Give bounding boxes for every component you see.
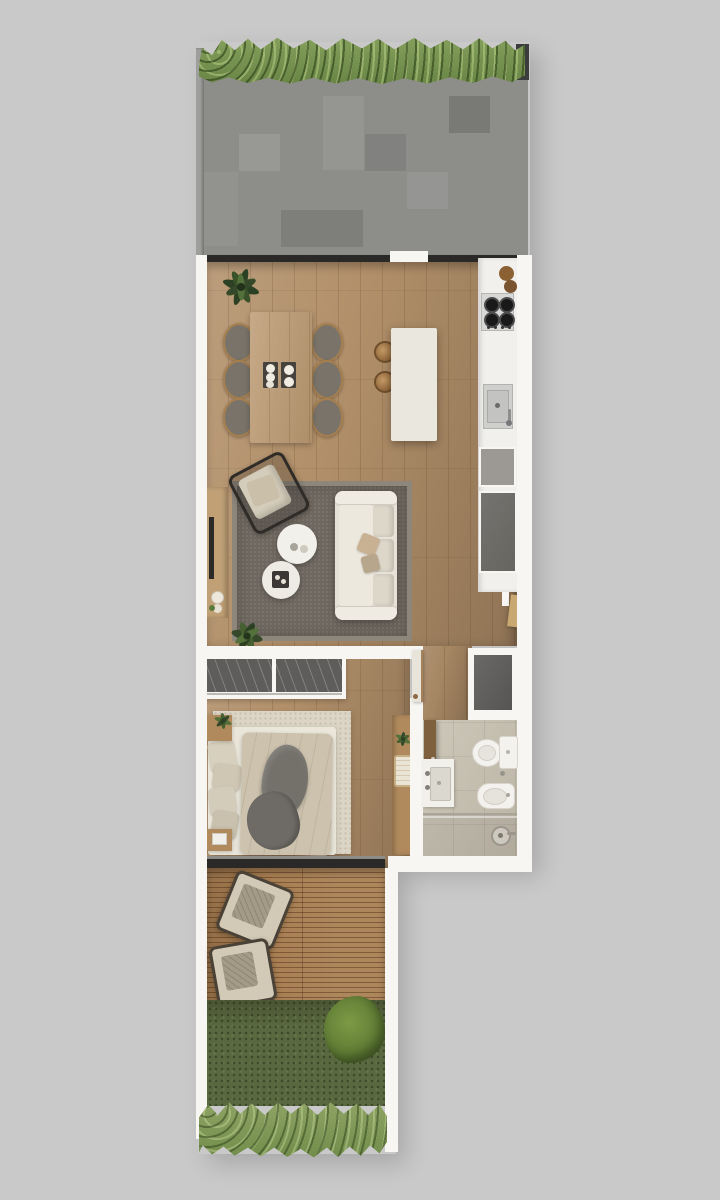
bedroom-bathroom-wall [410, 698, 423, 862]
dining-table [250, 312, 312, 443]
left-wall [196, 255, 207, 1139]
dining-chair [311, 360, 343, 399]
kitchen-island [391, 328, 437, 441]
cooktop [481, 293, 514, 331]
toilet-bowl-inner [478, 745, 496, 761]
cooktop-knob [494, 326, 497, 329]
dining-plant [214, 260, 268, 314]
bedroom-sliding-door [207, 859, 385, 868]
kitchen-cabinet-tall [479, 491, 517, 573]
plate [284, 365, 294, 375]
living-bedroom-wall [196, 646, 423, 659]
lounger-cushion [221, 951, 259, 991]
deck-seam [302, 868, 303, 1002]
shower-head-center [498, 833, 503, 838]
bidet-drain [506, 793, 510, 797]
burner [484, 297, 500, 313]
dining-chair [311, 398, 343, 437]
deck-lounger [208, 937, 278, 1009]
cooktop-knob [508, 326, 511, 329]
stone-tile [365, 134, 406, 171]
hall-closet-door [474, 655, 512, 710]
plate [266, 381, 274, 388]
placemat [263, 362, 278, 388]
basin-faucet [425, 771, 430, 776]
sofa-armrest [335, 607, 397, 620]
bedroom-door-leaf [412, 650, 423, 702]
floor-plan-canvas [0, 0, 720, 1200]
toilet-cistern [499, 736, 518, 769]
basin-faucet [425, 785, 430, 790]
cutting-board [504, 280, 517, 293]
toilet-flush-button [506, 750, 510, 754]
placemat [281, 362, 296, 388]
washbasin-vanity [423, 759, 454, 807]
entrance-door-jamb [502, 592, 509, 606]
wardrobe-rail [206, 693, 342, 695]
bidet-faucet [500, 771, 505, 776]
cutting-board [499, 266, 514, 281]
plate [284, 377, 294, 387]
sink-drain [495, 403, 500, 408]
lounger-cushion [231, 883, 276, 929]
cooktop-knob [501, 326, 504, 329]
hallway-floor [423, 646, 472, 722]
right-wall [517, 255, 532, 872]
shower-arm [507, 832, 516, 835]
deck-right-wall [385, 868, 398, 1152]
console-decor-plant [209, 605, 215, 611]
stone-tile [449, 96, 490, 133]
table-decor [300, 545, 308, 553]
shower-glass-screen [423, 813, 517, 815]
stone-tile [281, 210, 363, 247]
terrace-hedge [199, 36, 525, 84]
sofa [335, 491, 397, 620]
cooktop-knob [487, 326, 490, 329]
bidet-inner [483, 788, 507, 805]
tv [209, 517, 214, 579]
kitchen-counter [478, 258, 517, 592]
dining-chair [311, 323, 343, 362]
stone-tile [239, 134, 280, 171]
nightstand-tray [212, 833, 227, 845]
tray-cup [275, 575, 280, 580]
bathroom-door-leaf [424, 720, 436, 764]
garden-bush [324, 996, 385, 1063]
table-tray [272, 571, 289, 588]
tv-console [207, 487, 228, 618]
bathroom-bottom-wall [388, 856, 532, 872]
coffee-table-large [277, 524, 317, 564]
sofa-back-cushion [373, 574, 394, 606]
table-decor [290, 543, 298, 551]
terrace-left-wall [196, 48, 204, 264]
tray-cup [281, 579, 286, 584]
terrace-stone-paving [197, 58, 528, 264]
stone-tile [407, 172, 448, 209]
wardrobe-sliding-door [276, 656, 342, 692]
basin-drain [437, 781, 441, 785]
console-decor-plate [211, 591, 224, 604]
nightstand [204, 829, 232, 851]
kitchen-cabinet-upper [479, 447, 516, 487]
sink-faucet-base [506, 420, 512, 426]
stone-tile [323, 96, 364, 170]
shower-head [491, 826, 511, 846]
sofa-back-cushion [373, 505, 394, 537]
terrace [196, 36, 532, 264]
coffee-table-small [262, 561, 300, 599]
wardrobe-sliding-door [206, 656, 272, 692]
bedroom-wardrobe [202, 652, 346, 699]
bidet [477, 783, 515, 809]
kitchen-sink [483, 384, 513, 429]
plate [266, 364, 275, 373]
burner [499, 297, 515, 313]
toilet-bowl [472, 739, 502, 767]
hall-closet [468, 648, 517, 717]
nightstand-plant [208, 707, 238, 735]
bedroom-door-handle [413, 694, 418, 699]
sofa-armrest [335, 491, 397, 504]
